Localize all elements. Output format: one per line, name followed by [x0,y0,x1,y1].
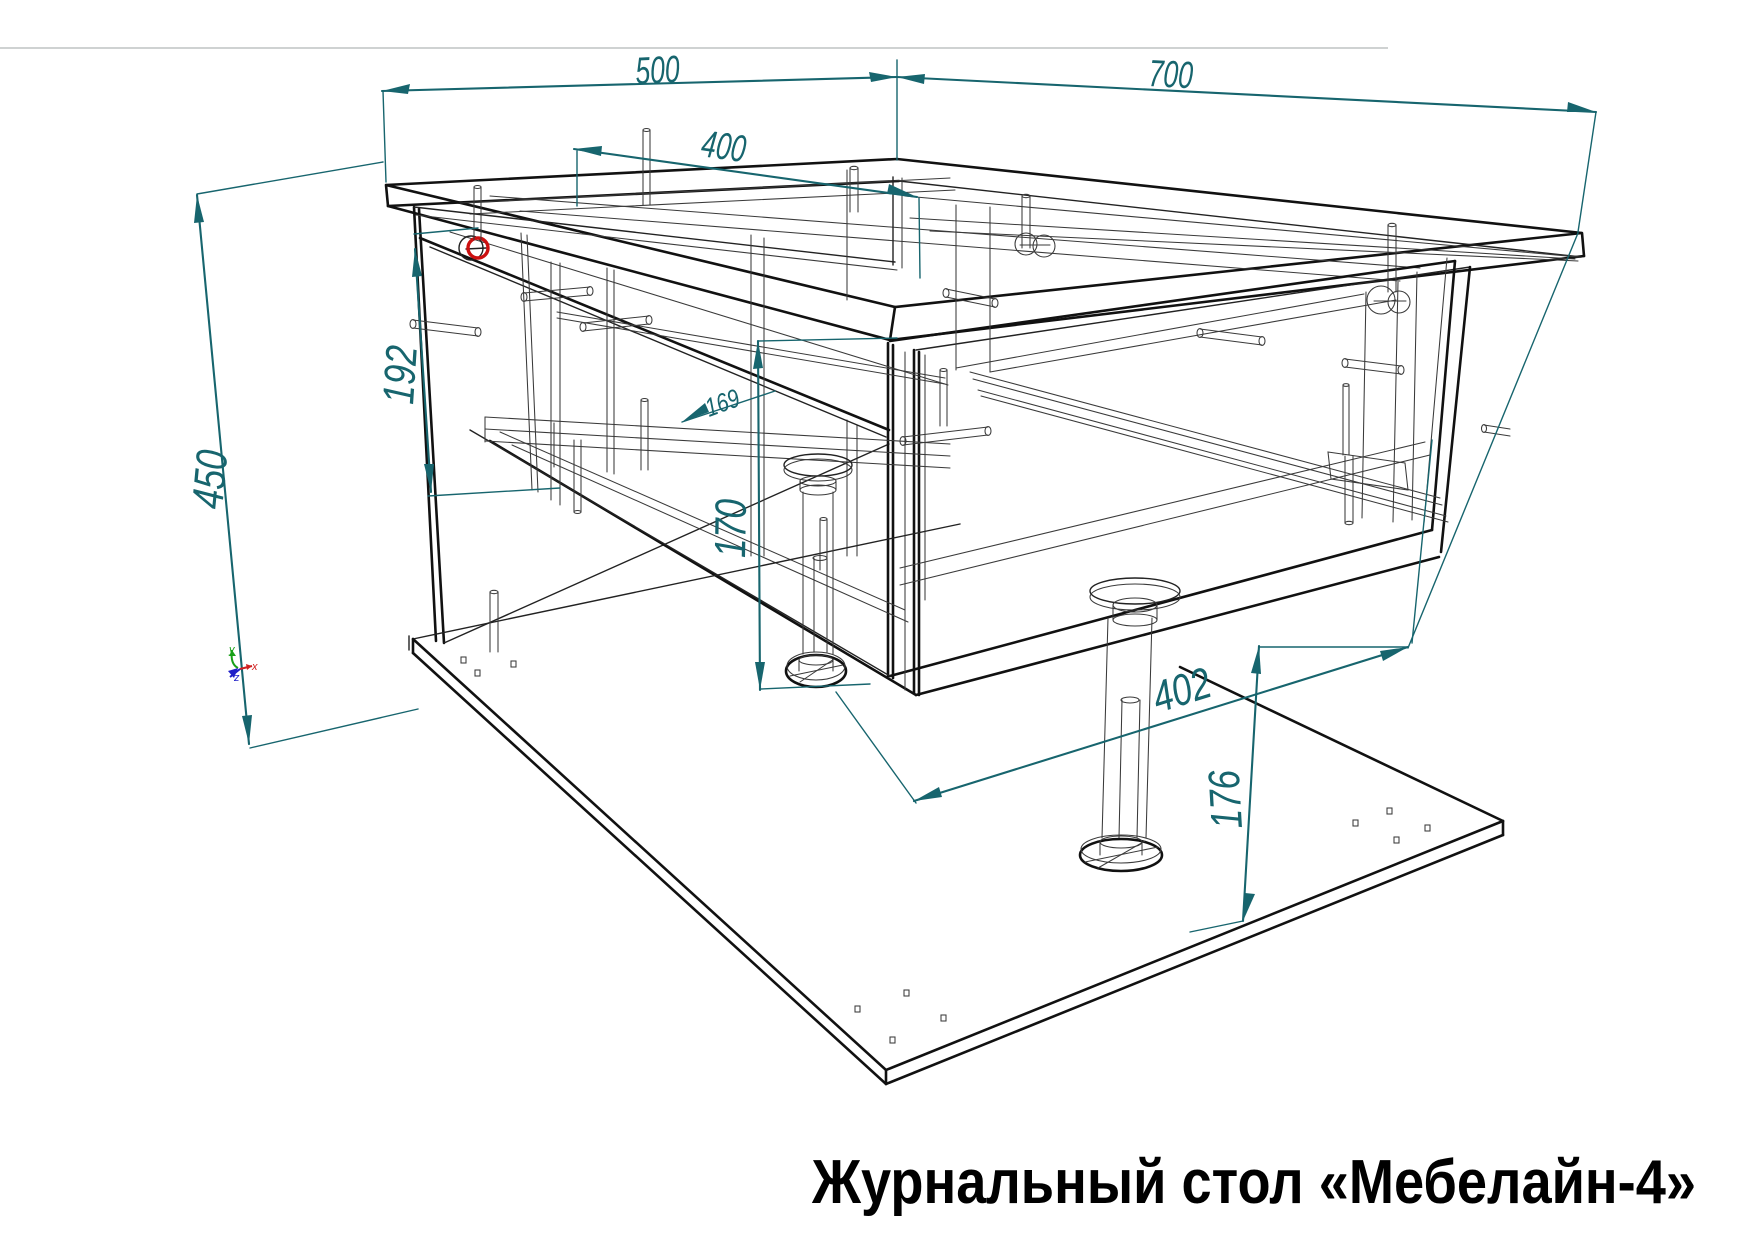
svg-text:z: z [233,672,240,684]
svg-text:Журнальный стол «Мебелайн-4»: Журнальный стол «Мебелайн-4» [811,1148,1696,1217]
svg-text:176: 176 [1200,768,1252,830]
svg-text:400: 400 [699,122,749,171]
svg-text:x: x [251,661,258,673]
svg-text:500: 500 [634,47,681,92]
svg-text:192: 192 [374,344,426,406]
svg-text:170: 170 [706,499,756,559]
svg-text:450: 450 [184,448,238,511]
svg-text:700: 700 [1148,51,1195,96]
